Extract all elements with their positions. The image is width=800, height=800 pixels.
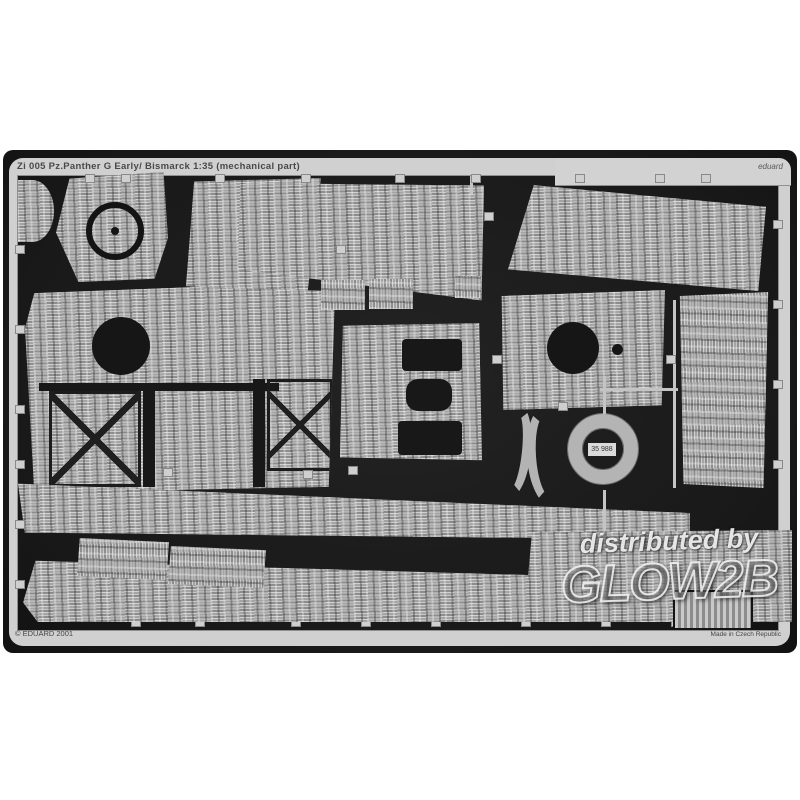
ribbed-grille-plate <box>675 592 751 628</box>
sprue-tab <box>15 325 25 334</box>
x-brace-cross <box>267 379 333 471</box>
eduard-brand-mark: eduard <box>758 162 783 171</box>
hatch-hole <box>92 317 150 375</box>
panel-divider-horizontal <box>39 383 279 391</box>
side-plate-with-hatch <box>500 290 665 410</box>
ladder-plate-2 <box>369 279 413 309</box>
tall-right-plate <box>678 292 770 490</box>
sprue-tab <box>215 174 225 183</box>
sprue-tab <box>492 355 502 364</box>
sprue-tab <box>575 174 585 183</box>
photoetch-fret-photo: Zi 005 Pz.Panther G Early/ Bismarck 1:35… <box>3 150 797 653</box>
small-plate-2 <box>168 546 266 588</box>
sprue-tab <box>15 405 25 414</box>
sprue-tab <box>484 212 494 221</box>
sprue-tab <box>666 355 676 364</box>
sprue-tab <box>471 174 481 183</box>
sprue-runner <box>673 300 676 488</box>
sprue-tab <box>85 174 95 183</box>
sprue-tab <box>348 466 358 475</box>
ladder-plate-1 <box>321 280 365 310</box>
sprue-tab <box>655 174 665 183</box>
sprue-tab <box>773 380 783 389</box>
sprue-tab <box>15 245 25 254</box>
sprue-tab <box>301 174 311 183</box>
page-background: Zi 005 Pz.Panther G Early/ Bismarck 1:35… <box>0 0 800 800</box>
x-brace-panel-left <box>49 391 141 487</box>
sprue-tab <box>121 174 131 183</box>
made-in-text: Made in Czech Republic <box>711 631 781 638</box>
x-brace-cross <box>49 391 141 487</box>
sprue-tab <box>558 402 568 411</box>
sprue-tab <box>336 245 346 254</box>
cupola-centre-dot <box>111 227 119 235</box>
sprue-runner <box>600 388 678 391</box>
fret-title-text: Zi 005 Pz.Panther G Early/ Bismarck 1:35… <box>17 160 557 174</box>
copyright-text: © EDUARD 2001 <box>15 629 73 638</box>
x-brace-panel-right <box>267 379 333 471</box>
sprue-tab <box>773 460 783 469</box>
ladder-plate-3 <box>455 276 481 298</box>
sprue-runner <box>603 490 606 530</box>
fret-frame-top-right <box>555 158 791 186</box>
cutout-middle <box>406 379 452 411</box>
sprue-tab <box>15 460 25 469</box>
cupola-plate <box>56 172 168 282</box>
cupola-ring-detail <box>86 202 144 260</box>
sprue-tab <box>701 174 711 183</box>
sprue-tab <box>395 174 405 183</box>
panel-divider-vertical-1 <box>143 387 155 487</box>
sprue-tab <box>773 220 783 229</box>
sprue-runner <box>603 376 606 414</box>
rear-hull-plate <box>25 287 335 493</box>
sprue-tab <box>163 468 173 477</box>
panel-divider-vertical-2 <box>253 379 265 487</box>
sprue-tab <box>15 520 25 529</box>
centre-plate-with-cutouts <box>340 323 482 463</box>
plug-hole-dot <box>612 344 623 355</box>
small-plate-1 <box>77 538 169 580</box>
sprue-tab <box>15 580 25 589</box>
sprue-tab <box>773 300 783 309</box>
cutout-top <box>402 339 462 371</box>
cutout-bottom <box>398 421 462 455</box>
hatch-hole-small <box>547 322 599 374</box>
sprue-tab <box>303 470 313 479</box>
ring-part-number-label: 35 988 <box>588 443 616 456</box>
